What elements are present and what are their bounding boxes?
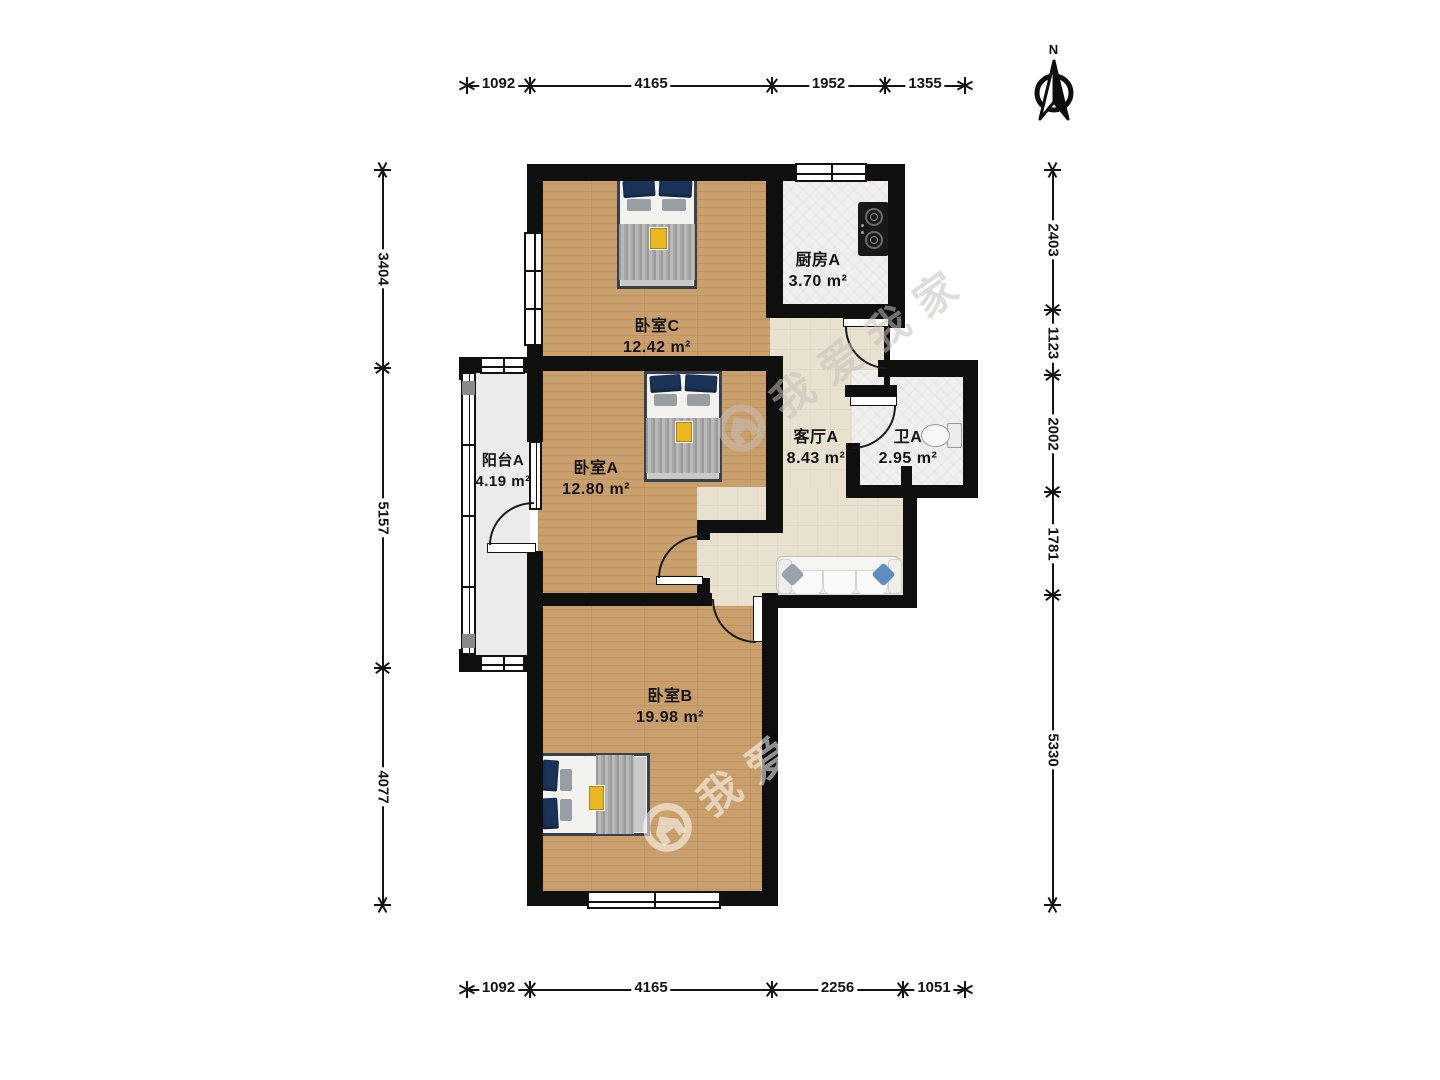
bed-tray bbox=[675, 421, 693, 443]
wall bbox=[766, 164, 783, 318]
dimension-tick bbox=[1044, 374, 1061, 376]
room-name: 卫A bbox=[843, 427, 973, 448]
wall bbox=[527, 593, 712, 606]
cooktop bbox=[858, 202, 889, 256]
room-name: 卧室C bbox=[592, 316, 722, 337]
room-name: 阳台A bbox=[438, 450, 568, 471]
room-name: 厨房A bbox=[753, 250, 883, 271]
dimension-label: 1092 bbox=[479, 75, 518, 92]
stove-knob bbox=[861, 231, 864, 234]
bed-tray bbox=[588, 785, 605, 811]
window-bedroom-b bbox=[587, 891, 721, 909]
dimension-tick bbox=[1044, 594, 1061, 596]
dimension-label: 2256 bbox=[818, 979, 857, 996]
room-area: 19.98 m² bbox=[605, 707, 735, 728]
wall bbox=[527, 371, 543, 442]
room-area: 2.95 m² bbox=[843, 448, 973, 469]
burner bbox=[865, 231, 883, 249]
dimension-label: 2002 bbox=[1045, 414, 1062, 453]
room-label-bedroom-c: 卧室C 12.42 m² bbox=[592, 316, 722, 358]
dimension-label: 1952 bbox=[809, 75, 848, 92]
compass: N bbox=[1026, 42, 1082, 132]
dimension-tick bbox=[466, 77, 468, 94]
dimension-tick bbox=[374, 169, 391, 171]
wall bbox=[697, 520, 783, 533]
pillow bbox=[654, 394, 677, 406]
sofa-seat bbox=[823, 570, 856, 595]
pillow bbox=[627, 199, 651, 211]
dimension-tick bbox=[964, 981, 966, 998]
balcony-post bbox=[462, 381, 475, 395]
door-kitchen bbox=[843, 318, 889, 327]
window-balcony-top bbox=[480, 357, 525, 374]
wall bbox=[766, 304, 905, 318]
window-balcony-bottom bbox=[480, 655, 525, 672]
dimension-line-left: 340451574077 bbox=[382, 170, 384, 905]
wall bbox=[903, 487, 917, 608]
pillow bbox=[622, 179, 655, 198]
dimension-label: 4077 bbox=[375, 767, 392, 806]
wall bbox=[762, 593, 778, 905]
room-label-bathroom: 卫A 2.95 m² bbox=[843, 427, 973, 469]
floorplan-canvas: 我爱我家 我爱我家 卧室C 12.42 m² 厨房A 3.70 m² 卧室A 1… bbox=[0, 0, 1440, 1080]
bed-bedroom-c bbox=[617, 176, 697, 289]
room-label-balcony: 阳台A 4.19 m² bbox=[438, 450, 568, 492]
sofa bbox=[776, 556, 901, 594]
room-area: 3.70 m² bbox=[753, 271, 883, 292]
dimension-tick bbox=[771, 981, 773, 998]
blanket-edge bbox=[634, 757, 646, 832]
window-kitchen bbox=[795, 163, 867, 182]
wall bbox=[762, 595, 917, 608]
wall bbox=[527, 655, 543, 905]
dimension-tick bbox=[902, 981, 904, 998]
wall bbox=[878, 360, 978, 377]
room-area: 12.42 m² bbox=[592, 337, 722, 358]
room-area: 4.19 m² bbox=[438, 471, 568, 492]
wall bbox=[527, 356, 783, 371]
dimension-tick bbox=[374, 667, 391, 669]
window-bedroom-c bbox=[524, 232, 543, 346]
dimension-label: 4165 bbox=[631, 75, 670, 92]
pillow bbox=[687, 394, 710, 406]
door-bathroom bbox=[850, 396, 897, 406]
dimension-label: 1123 bbox=[1045, 323, 1062, 362]
dimension-label: 1781 bbox=[1045, 524, 1062, 563]
dimension-tick bbox=[374, 367, 391, 369]
dimension-label: 3404 bbox=[375, 249, 392, 288]
dimension-label: 1051 bbox=[914, 979, 953, 996]
dimension-label: 5157 bbox=[375, 498, 392, 537]
floor-bedroom-b bbox=[538, 606, 775, 898]
bed-tray bbox=[649, 227, 668, 250]
dimension-tick bbox=[466, 981, 468, 998]
pillow bbox=[659, 179, 693, 198]
room-name: 卧室B bbox=[605, 686, 735, 707]
dimension-label: 2403 bbox=[1045, 220, 1062, 259]
pillow bbox=[541, 798, 559, 830]
dimension-label: 1092 bbox=[479, 979, 518, 996]
room-label-bedroom-b: 卧室B 19.98 m² bbox=[605, 686, 735, 728]
wall bbox=[901, 466, 912, 487]
stove-knob bbox=[861, 224, 864, 227]
pillow bbox=[662, 199, 686, 211]
pillow bbox=[649, 374, 681, 393]
compass-north-label: N bbox=[1026, 42, 1082, 57]
dimension-line-bottom: 1092416522561051 bbox=[467, 989, 965, 991]
pillow bbox=[541, 759, 559, 791]
dimension-line-right: 24031123200217815330 bbox=[1052, 170, 1054, 905]
dimension-label: 4165 bbox=[631, 979, 670, 996]
blanket-edge bbox=[621, 280, 693, 286]
pillow bbox=[685, 374, 718, 393]
dimension-tick bbox=[1044, 309, 1061, 311]
dimension-tick bbox=[374, 904, 391, 906]
room-label-kitchen: 厨房A 3.70 m² bbox=[753, 250, 883, 292]
dimension-tick bbox=[884, 77, 886, 94]
bed-bedroom-b bbox=[538, 753, 650, 836]
dimension-tick bbox=[964, 77, 966, 94]
pillow bbox=[560, 769, 572, 791]
pillow bbox=[560, 799, 572, 821]
window-balcony-left bbox=[461, 372, 476, 655]
dimension-label: 5330 bbox=[1045, 730, 1062, 769]
dimension-tick bbox=[1044, 904, 1061, 906]
north-arrow-icon bbox=[1026, 57, 1082, 127]
burner bbox=[865, 208, 883, 226]
dimension-tick bbox=[1044, 169, 1061, 171]
dimension-tick bbox=[529, 981, 531, 998]
balcony-post bbox=[462, 634, 475, 648]
dimension-label: 1355 bbox=[905, 75, 944, 92]
dimension-line-top: 1092416519521355 bbox=[467, 85, 965, 87]
wall bbox=[848, 485, 978, 498]
dimension-tick bbox=[1044, 491, 1061, 493]
dimension-tick bbox=[771, 77, 773, 94]
dimension-tick bbox=[529, 77, 531, 94]
